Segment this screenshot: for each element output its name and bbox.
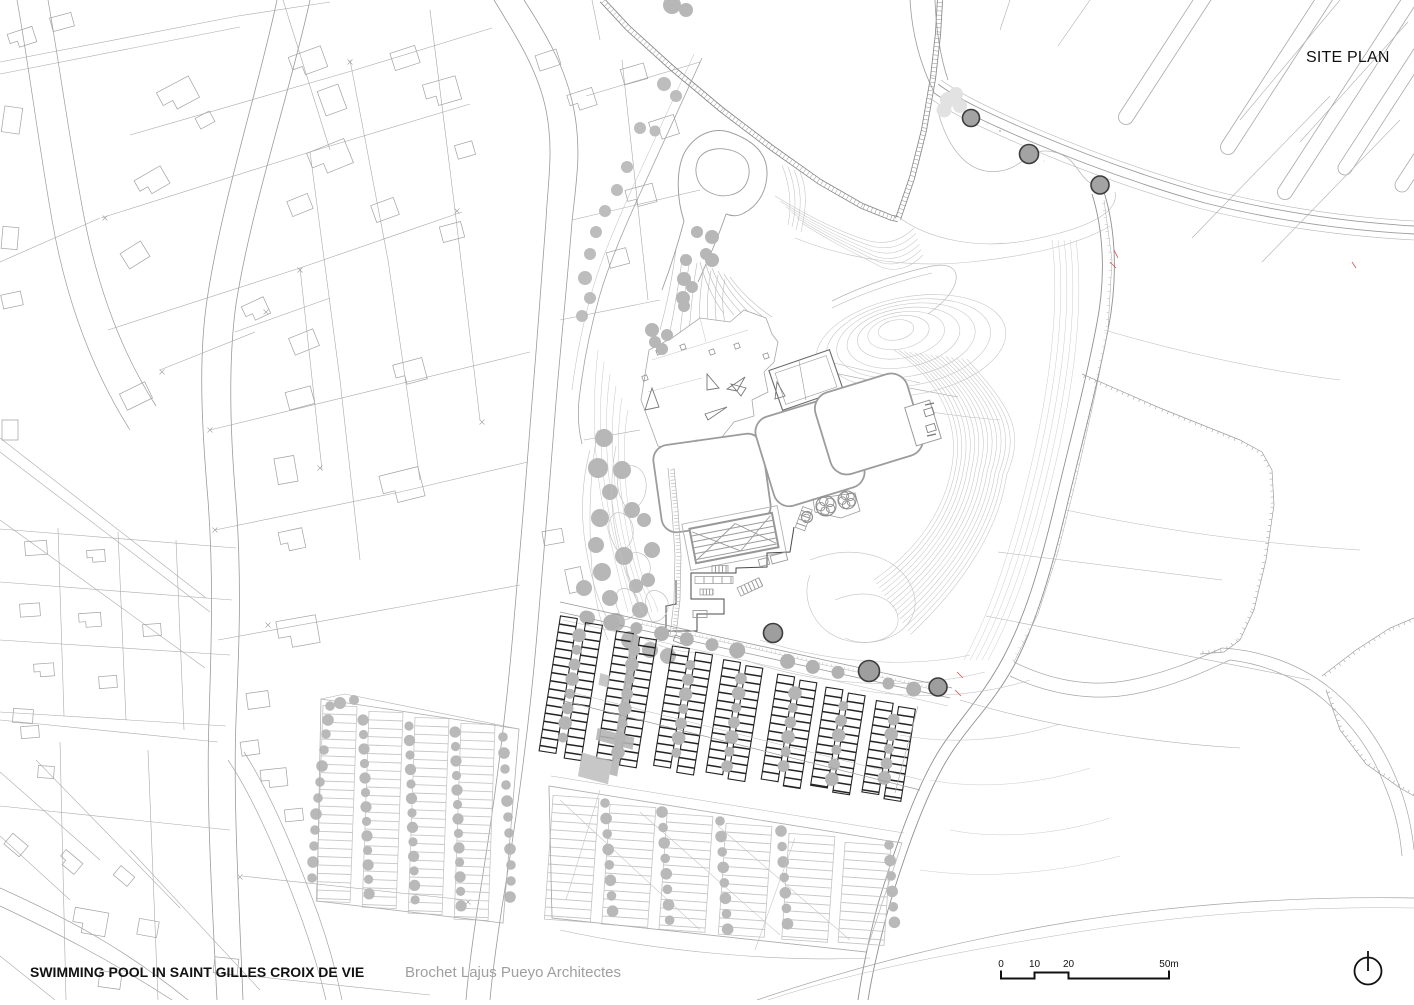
svg-text:Brochet Lajus Pueyo Architecte: Brochet Lajus Pueyo Architectes xyxy=(405,964,621,981)
svg-text:10: 10 xyxy=(1029,959,1041,970)
svg-text:50m: 50m xyxy=(1159,959,1178,970)
svg-text:SWIMMING POOL IN SAINT GILLES: SWIMMING POOL IN SAINT GILLES CROIX DE V… xyxy=(30,964,364,980)
svg-text:SITE PLAN: SITE PLAN xyxy=(1306,49,1390,66)
svg-text:0: 0 xyxy=(998,959,1004,970)
svg-text:20: 20 xyxy=(1063,959,1075,970)
